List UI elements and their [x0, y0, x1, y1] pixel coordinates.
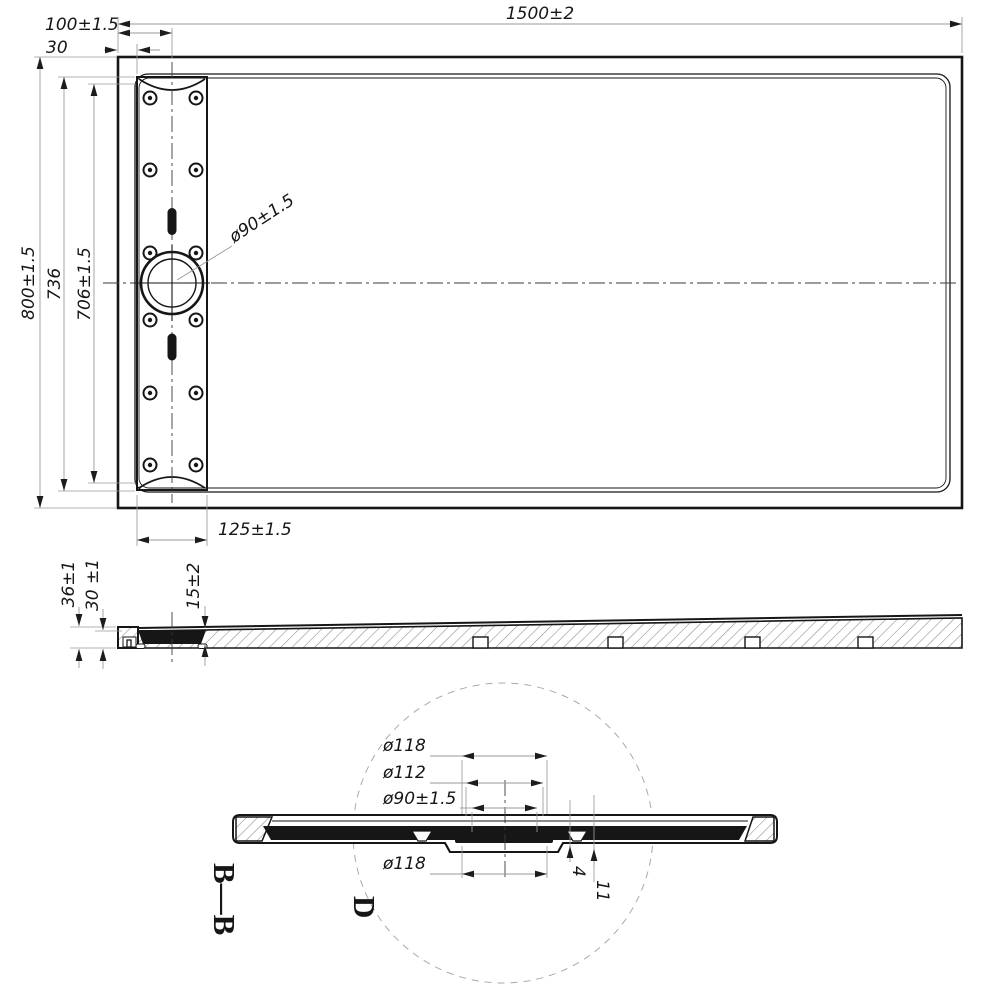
dim-channel-width-label: 125±1.5 — [218, 520, 292, 540]
dim-channel-length-inner-label: 706±1.5 — [75, 247, 95, 321]
channel-screw-holes — [144, 92, 203, 472]
channel-slot-upper — [168, 208, 177, 235]
dim-overall-depth-label: 800±1.5 — [19, 246, 39, 320]
recess-cover-plate — [455, 834, 553, 843]
cover-pad-right — [198, 644, 207, 649]
detail-d-label: D — [347, 896, 382, 918]
cover-pad-left — [136, 644, 145, 649]
dim-dia-drain-label: ø90±1.5 — [382, 789, 456, 809]
dim-step-small-label: 4 — [568, 866, 588, 877]
drawing-svg: 1500±2 100±1.5 30 800±1.5 736 706±1.5 ø9… — [0, 0, 1000, 1000]
dim-channel-length-outer-label: 736 — [45, 268, 65, 301]
tray-outer-outline — [118, 57, 962, 508]
recess-cavity — [450, 843, 558, 851]
left-end-tab — [127, 640, 131, 647]
channel-slot-lower — [168, 334, 177, 361]
dim-dia-mid-label: ø112 — [382, 763, 426, 783]
side-section-view: 36±1 30 ±1 15±2 — [59, 559, 962, 669]
dim-drain-offset-label: 100±1.5 — [45, 15, 119, 35]
dim-recess-depth-label: 15±2 — [184, 563, 204, 610]
technical-drawing-canvas: 1500±2 100±1.5 30 800±1.5 736 706±1.5 ø9… — [0, 0, 1000, 1000]
top-view: 1500±2 100±1.5 30 800±1.5 736 706±1.5 ø9… — [19, 4, 962, 546]
dim-dia-top-label: ø118 — [382, 736, 426, 756]
dim-edge-gap-label: 30 — [46, 38, 68, 58]
dim-dia-bottom-label: ø118 — [382, 854, 426, 874]
dim-step-large-label: 11 — [592, 880, 612, 902]
section-b-b-label: B—B — [207, 863, 242, 935]
dim-body-height-label: 30 ±1 — [83, 559, 103, 611]
dim-drain-diameter-label: ø90±1.5 — [225, 190, 298, 247]
dim-overall-width-label: 1500±2 — [506, 4, 574, 24]
detail-view: ø118 ø112 ø90±1.5 ø118 4 11 B—B D — [207, 683, 777, 983]
dim-total-height-label: 36±1 — [59, 561, 79, 608]
